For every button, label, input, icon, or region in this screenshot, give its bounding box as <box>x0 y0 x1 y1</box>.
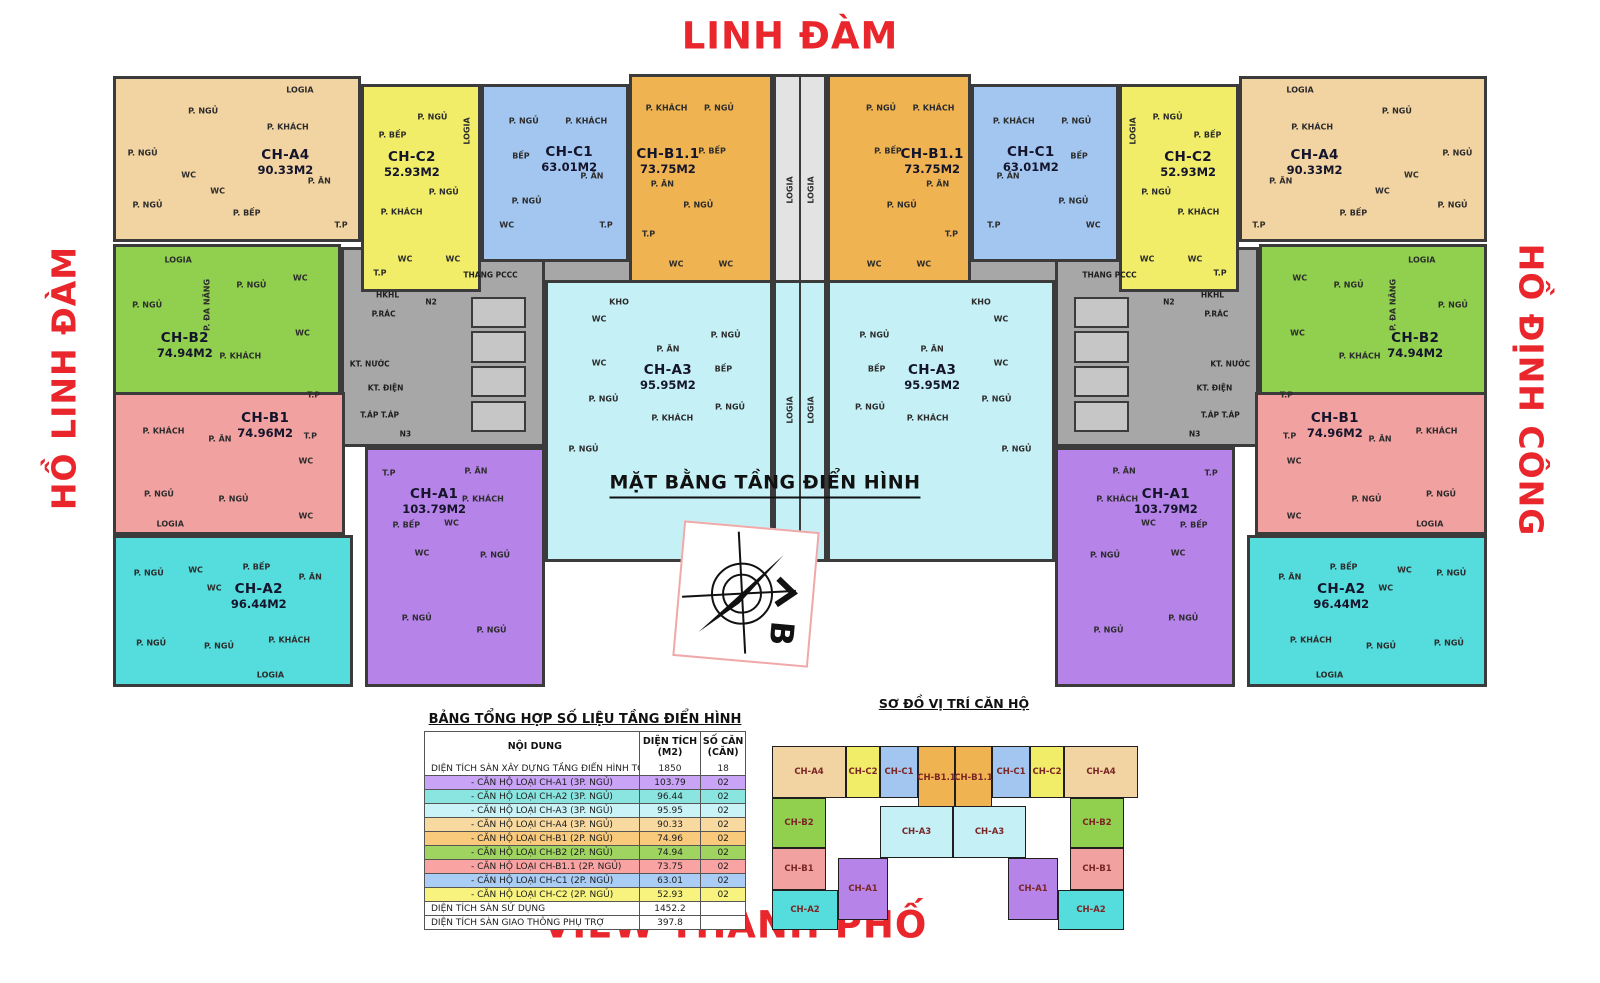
unit-label: CH-A1103.79M2 <box>402 486 466 516</box>
room-label: BẾP <box>715 364 732 373</box>
room-label: P. NGỦ <box>219 495 249 504</box>
room-label: WC <box>592 314 607 323</box>
unit-name: CH-B1.1 <box>636 146 699 162</box>
row-label: - CĂN HỘ LOẠI CH-A1 (3P. NGỦ) <box>425 776 639 789</box>
unit-area: 96.44M2 <box>1313 597 1369 611</box>
room-label: P. BẾP <box>1180 520 1208 529</box>
row-label: DIỆN TÍCH SÀN XÂY DỰNG TẦNG ĐIỂN HÌNH TÒ… <box>425 762 639 775</box>
unit-name: CH-B1 <box>1307 410 1363 426</box>
room-label: BẾP <box>512 151 529 160</box>
row-label: - CĂN HỘ LOẠI CH-A3 (3P. NGỦ) <box>425 804 639 817</box>
unit-name: CH-A2 <box>1313 581 1369 597</box>
room-label: P. NGỦ <box>887 200 917 209</box>
room-label: LOGIA <box>786 177 795 204</box>
room-label: P. NGỦ <box>1366 642 1396 651</box>
room-label: P. BẾP <box>233 209 261 218</box>
room-label: P. NGỦ <box>589 394 619 403</box>
room-label: P. NGỦ <box>477 626 507 635</box>
room-label: P. BẾP <box>1194 131 1222 140</box>
unit-label: CH-A1103.79M2 <box>1134 486 1198 516</box>
room-label: WC <box>398 254 413 263</box>
room-label: P. NGỦ <box>982 394 1012 403</box>
unit-area: 74.96M2 <box>1307 426 1363 440</box>
room-label: T.P <box>304 432 317 441</box>
room-label: P. NGỦ <box>1061 117 1091 126</box>
unit-name: CH-A3 <box>640 362 696 378</box>
unit-area: 90.33M2 <box>257 163 313 177</box>
summary-table-section: BẢNG TỔNG HỢP SỐ LIỆU TẦNG ĐIỂN HÌNH NỘI… <box>424 712 746 930</box>
unit-area: 63.01M2 <box>1003 160 1059 174</box>
apartment-CH-B1-left: CH-B174.96M2P. KHÁCHP. ĂNT.PP. NGỦP. NGỦ… <box>113 392 345 535</box>
row-count: 02 <box>700 888 745 901</box>
room-label: P. NGỦ <box>417 113 447 122</box>
unit-area: 96.44M2 <box>231 597 287 611</box>
room-label: WC <box>210 187 225 196</box>
unit-name: CH-C2 <box>1160 149 1216 165</box>
room-label: P. NGỦ <box>136 639 166 648</box>
table-row: - CĂN HỘ LOẠI CH-C2 (2P. NGỦ)52.9302 <box>425 887 745 901</box>
unit-area: 73.75M2 <box>901 162 964 176</box>
room-label: P. KHÁCH <box>1291 123 1333 132</box>
unit-name: CH-C1 <box>541 144 597 160</box>
room-label: P. NGỦ <box>866 103 896 112</box>
room-label: P. NGỦ <box>1058 196 1088 205</box>
row-label: DIỆN TÍCH SÀN SỬ DỤNG <box>425 902 639 915</box>
unit-name: CH-A2 <box>231 581 287 597</box>
row-label: DIỆN TÍCH SÀN GIAO THÔNG PHỤ TRỢ <box>425 916 639 929</box>
room-label: WC <box>1404 171 1419 180</box>
room-label: KT. ĐIỆN <box>368 383 404 392</box>
unit-label: CH-A395.95M2 <box>904 362 960 392</box>
room-label: T.P <box>307 390 320 399</box>
room-label: P. BẾP <box>392 520 420 529</box>
room-label: T.P <box>1283 432 1296 441</box>
unit-area: 74.94M2 <box>157 346 213 360</box>
header-so-can: SỐ CĂN(CĂN) <box>700 732 745 762</box>
row-count <box>700 916 745 929</box>
row-area: 1452.2 <box>639 902 701 915</box>
room-label: LOGIA <box>1408 256 1435 265</box>
minimap-unit-CH-C1: CH-C1 <box>880 746 918 798</box>
minimap-unit-CH-A1: CH-A1 <box>1008 858 1058 920</box>
room-label: N3 <box>400 430 412 439</box>
room-label: P. NGỦ <box>1382 107 1412 116</box>
table-row: - CĂN HỘ LOẠI CH-A1 (3P. NGỦ)103.7902 <box>425 775 745 789</box>
room-label: P. NGỦ <box>855 403 885 412</box>
room-label: P.RÁC <box>372 310 396 319</box>
room-label: P. ĂN <box>1368 434 1391 443</box>
unit-name: CH-A1 <box>1134 486 1198 502</box>
unit-label: CH-B274.94M2 <box>1387 330 1443 360</box>
room-label: P. KHÁCH <box>143 426 185 435</box>
room-label: P. ĂN <box>651 180 674 189</box>
apartment-CH-A3-left: CH-A395.95M2KHOWCWCP. NGỦP. NGỦP. ĂNBẾPP… <box>545 280 773 562</box>
room-label: KHO <box>609 298 629 307</box>
row-label: - CĂN HỘ LOẠI CH-A2 (3P. NGỦ) <box>425 790 639 803</box>
minimap-unit-CH-A4: CH-A4 <box>772 746 846 798</box>
room-label: P. NGỦ <box>236 281 266 290</box>
elevator-shaft <box>471 331 526 362</box>
unit-name: CH-A4 <box>1287 147 1343 163</box>
header-noi-dung: NỘI DUNG <box>425 732 639 762</box>
room-label: P. NGỦ <box>1141 188 1171 197</box>
table-row: DIỆN TÍCH SÀN SỬ DỤNG1452.2 <box>425 901 745 915</box>
room-label: T.P <box>1280 390 1293 399</box>
room-label: LOGIA <box>1316 671 1343 680</box>
room-label: T.P <box>642 229 655 238</box>
row-label: - CĂN HỘ LOẠI CH-C2 (2P. NGỦ) <box>425 888 639 901</box>
room-label: LOGIA <box>806 177 815 204</box>
minimap-unit-CH-A2: CH-A2 <box>772 890 838 930</box>
room-label: THANG PCCC <box>463 271 517 280</box>
room-label: WC <box>669 260 684 269</box>
elevator-shaft <box>1074 401 1129 432</box>
unit-label: CH-A296.44M2 <box>231 581 287 611</box>
unit-name: CH-A3 <box>904 362 960 378</box>
unit-label: CH-C163.01M2 <box>1003 144 1059 174</box>
minimap-unit-CH-B1: CH-B1 <box>772 848 826 890</box>
unit-label: CH-B174.96M2 <box>237 410 293 440</box>
apartment-CH-C2-left: CH-C252.93M2P. NGỦP. BẾPLOGIAP. NGỦP. KH… <box>361 84 481 292</box>
room-label: WC <box>1375 187 1390 196</box>
unit-label: CH-C252.93M2 <box>384 149 440 179</box>
table-row: - CĂN HỘ LOẠI CH-B1.1 (2P. NGỦ)73.7502 <box>425 859 745 873</box>
minimap-unit-CH-C2: CH-C2 <box>846 746 880 798</box>
row-area: 103.79 <box>639 776 701 789</box>
compass-icon: B <box>675 522 814 661</box>
minimap-unit-CH-B1.1: CH-B1.1 <box>955 746 992 810</box>
room-label: LOGIA <box>1286 86 1313 95</box>
room-label: P. NGỦ <box>132 201 162 210</box>
room-label: P. NGỦ <box>429 188 459 197</box>
room-label: WC <box>867 260 882 269</box>
unit-label: CH-B1.173.75M2 <box>636 146 699 176</box>
room-label: P. NGỦ <box>480 551 510 560</box>
room-label: T.P <box>600 220 613 229</box>
summary-table-title: BẢNG TỔNG HỢP SỐ LIỆU TẦNG ĐIỂN HÌNH <box>424 712 746 727</box>
room-label: P. KHÁCH <box>651 414 693 423</box>
room-label: P. KHÁCH <box>646 103 688 112</box>
room-label: WC <box>1287 511 1302 520</box>
row-count: 02 <box>700 790 745 803</box>
room-label: P. NGỦ <box>1351 495 1381 504</box>
room-label: P. NGỦ <box>512 196 542 205</box>
minimap-unit-CH-A3: CH-A3 <box>953 806 1026 858</box>
room-label: WC <box>181 171 196 180</box>
apartment-CH-A1-right: CH-A1103.79M2T.PP. ĂNP. KHÁCHP. BẾPWCWCP… <box>1055 447 1235 687</box>
room-label: P. ĂN <box>208 434 231 443</box>
summary-table: NỘI DUNG DIỆN TÍCH(M2) SỐ CĂN(CĂN) DIỆN … <box>424 731 746 930</box>
unit-area: 103.79M2 <box>402 502 466 516</box>
room-label: LOGIA <box>462 118 471 145</box>
room-label: P. ĂN <box>926 180 949 189</box>
room-label: P. KHÁCH <box>993 117 1035 126</box>
room-label: P. NGỦ <box>1434 639 1464 648</box>
room-label: P. KHÁCH <box>565 117 607 126</box>
unit-label: CH-A490.33M2 <box>1287 147 1343 177</box>
room-label: P. NGỦ <box>1334 281 1364 290</box>
room-label: WC <box>592 359 607 368</box>
room-label: WC <box>446 254 461 263</box>
room-label: P. KHÁCH <box>1177 208 1219 217</box>
room-label: T.ÁP T.ÁP <box>360 410 399 419</box>
room-label: P. NGỦ <box>1442 148 1472 157</box>
row-area: 90.33 <box>639 818 701 831</box>
row-count <box>700 902 745 915</box>
room-label: P. KHÁCH <box>381 208 423 217</box>
row-area: 397.8 <box>639 916 701 929</box>
room-label: WC <box>994 314 1009 323</box>
room-label: T.P <box>1252 220 1265 229</box>
room-label: P. NGỦ <box>134 569 164 578</box>
unit-name: CH-A4 <box>257 147 313 163</box>
room-label: P. NGỦ <box>859 331 889 340</box>
unit-label: CH-A490.33M2 <box>257 147 313 177</box>
room-label: P. KHÁCH <box>913 103 955 112</box>
room-label: T.P <box>1205 469 1218 478</box>
room-label: P. KHÁCH <box>267 123 309 132</box>
room-label: HKHL <box>1201 290 1224 299</box>
unit-area: 52.93M2 <box>384 165 440 179</box>
table-row: DIỆN TÍCH SÀN XÂY DỰNG TẦNG ĐIỂN HÌNH TÒ… <box>425 762 745 775</box>
elevator-shaft <box>1074 366 1129 397</box>
room-label: WC <box>1140 254 1155 263</box>
room-label: P. ĂN <box>921 345 944 354</box>
room-label: P. KHÁCH <box>462 495 504 504</box>
unit-label: CH-B274.94M2 <box>157 330 213 360</box>
unit-name: CH-C1 <box>1003 144 1059 160</box>
room-label: P. KHÁCH <box>1339 352 1381 361</box>
row-label: - CĂN HỘ LOẠI CH-A4 (3P. NGỦ) <box>425 818 639 831</box>
apartment-CH-C1-left: CH-C163.01M2P. NGỦP. KHÁCHBẾPP. ĂNP. NGỦ… <box>481 84 629 262</box>
row-area: 95.95 <box>639 804 701 817</box>
table-row: - CĂN HỘ LOẠI CH-B2 (2P. NGỦ)74.9402 <box>425 845 745 859</box>
room-label: P. BẾP <box>874 147 902 156</box>
room-label: N3 <box>1189 430 1201 439</box>
row-count: 02 <box>700 818 745 831</box>
unit-name: CH-B2 <box>157 330 213 346</box>
room-label: P. NGỦ <box>402 614 432 623</box>
table-row: - CĂN HỘ LOẠI CH-A3 (3P. NGỦ)95.9502 <box>425 803 745 817</box>
unit-label: CH-A296.44M2 <box>1313 581 1369 611</box>
room-label: P. BẾP <box>1330 563 1358 572</box>
unit-area: 63.01M2 <box>541 160 597 174</box>
room-label: P. KHÁCH <box>907 414 949 423</box>
room-label: WC <box>1141 518 1156 527</box>
room-label: KT. NƯỚC <box>1210 360 1250 369</box>
room-label: LOGIA <box>806 396 815 423</box>
room-label: P. ĂN <box>656 345 679 354</box>
elevator-shaft <box>471 366 526 397</box>
room-label: WC <box>916 260 931 269</box>
room-label: T.P <box>945 229 958 238</box>
apartment-CH-A3-right: CH-A395.95M2KHOWCWCP. NGỦP. NGỦP. ĂNBẾPP… <box>827 280 1055 562</box>
room-label: WC <box>1290 329 1305 338</box>
room-label: P. ĂN <box>1113 467 1136 476</box>
unit-area: 95.95M2 <box>904 378 960 392</box>
room-label: WC <box>444 518 459 527</box>
room-label: P. NGỦ <box>683 200 713 209</box>
room-label: WC <box>298 511 313 520</box>
row-label: - CĂN HỘ LOẠI CH-B1.1 (2P. NGỦ) <box>425 860 639 873</box>
room-label: N2 <box>1163 298 1175 307</box>
room-label: WC <box>1378 583 1393 592</box>
room-label: T.P <box>373 268 386 277</box>
room-label: P. NGỦ <box>1090 551 1120 560</box>
room-label: WC <box>1287 456 1302 465</box>
unit-name: CH-B1 <box>237 410 293 426</box>
unit-area: 52.93M2 <box>1160 165 1216 179</box>
room-label: P. KHÁCH <box>219 352 261 361</box>
room-label: WC <box>1086 220 1101 229</box>
unit-area: 90.33M2 <box>1287 163 1343 177</box>
room-label: P. BẾP <box>379 131 407 140</box>
room-label: P. KHÁCH <box>1096 495 1138 504</box>
row-label: - CĂN HỘ LOẠI CH-B2 (2P. NGỦ) <box>425 846 639 859</box>
unit-label: CH-B174.96M2 <box>1307 410 1363 440</box>
room-label: P. NGỦ <box>569 444 599 453</box>
room-label: P. BẾP <box>698 147 726 156</box>
apartment-CH-A4-left: CH-A490.33M2LOGIAP. NGỦP. KHÁCHP. NGỦP. … <box>113 76 361 242</box>
room-label: P. ĐA NĂNG <box>203 279 212 331</box>
room-label: P. NGỦ <box>1153 113 1183 122</box>
table-row: - CĂN HỘ LOẠI CH-A2 (3P. NGỦ)96.4402 <box>425 789 745 803</box>
room-label: WC <box>1188 254 1203 263</box>
unit-label: CH-B1.173.75M2 <box>901 146 964 176</box>
apartment-CH-B1.1-left: CH-B1.173.75M2P. KHÁCHP. NGỦP. BẾPP. ĂNP… <box>629 74 773 286</box>
row-area: 63.01 <box>639 874 701 887</box>
row-area: 96.44 <box>639 790 701 803</box>
plan-title: MẶT BẰNG TẦNG ĐIỂN HÌNH <box>609 472 920 499</box>
apartment-CH-A4-right: CH-A490.33M2LOGIAP. NGỦP. KHÁCHP. NGỦP. … <box>1239 76 1487 242</box>
apartment-CH-A1-left: CH-A1103.79M2T.PP. ĂNP. KHÁCHP. BẾPWCWCP… <box>365 447 545 687</box>
apartment-CH-A2-right: CH-A296.44M2P. NGỦWCWCP. BẾPP. ĂNP. NGỦP… <box>1247 535 1487 687</box>
compass-north-letter: B <box>762 620 802 648</box>
unit-name: CH-A1 <box>402 486 466 502</box>
room-label: P. NGỦ <box>1438 300 1468 309</box>
minimap-unit-CH-A2: CH-A2 <box>1058 890 1124 930</box>
row-count: 02 <box>700 776 745 789</box>
minimap-unit-CH-A1: CH-A1 <box>838 858 888 920</box>
unit-area: 103.79M2 <box>1134 502 1198 516</box>
unit-area: 74.96M2 <box>237 426 293 440</box>
room-label: P. BẾP <box>243 563 271 572</box>
summary-table-header-row: NỘI DUNG DIỆN TÍCH(M2) SỐ CĂN(CĂN) <box>425 732 745 762</box>
room-label: P. ĂN <box>464 467 487 476</box>
elevator-shaft <box>1074 297 1129 328</box>
room-label: P. NGỦ <box>1426 489 1456 498</box>
table-row: DIỆN TÍCH SÀN GIAO THÔNG PHỤ TRỢ397.8 <box>425 915 745 929</box>
table-row: - CĂN HỘ LOẠI CH-B1 (2P. NGỦ)74.9602 <box>425 831 745 845</box>
minimap-unit-CH-A4: CH-A4 <box>1064 746 1138 798</box>
minimap-unit-CH-C2: CH-C2 <box>1030 746 1064 798</box>
apartment-CH-B1.1-right: CH-B1.173.75M2P. KHÁCHP. NGỦP. BẾPP. ĂNP… <box>827 74 971 286</box>
room-label: P. NGỦ <box>1436 569 1466 578</box>
room-label: P. ĐA NĂNG <box>1388 279 1397 331</box>
room-label: WC <box>1292 273 1307 282</box>
room-label: BẾP <box>868 364 885 373</box>
row-area: 1850 <box>639 762 701 775</box>
unit-label: CH-A395.95M2 <box>640 362 696 392</box>
minimap-unit-CH-B2: CH-B2 <box>1070 798 1124 848</box>
room-label: P. KHÁCH <box>1290 636 1332 645</box>
elevator-shaft <box>1074 331 1129 362</box>
room-label: P. ĂN <box>1269 177 1292 186</box>
room-label: KT. NƯỚC <box>350 360 390 369</box>
header-dien-tich: DIỆN TÍCH(M2) <box>639 732 701 762</box>
row-count: 02 <box>700 860 745 873</box>
unit-name: CH-C2 <box>384 149 440 165</box>
room-label: P. ĂN <box>299 573 322 582</box>
room-label: BẾP <box>1070 151 1087 160</box>
room-label: WC <box>207 583 222 592</box>
room-label: LOGIA <box>1416 519 1443 528</box>
room-label: P. ĂN <box>308 177 331 186</box>
room-label: P. NGỦ <box>1001 444 1031 453</box>
room-label: P. KHÁCH <box>268 636 310 645</box>
elevator-shaft <box>471 401 526 432</box>
apartment-CH-B1-right: CH-B174.96M2P. KHÁCHP. ĂNT.PP. NGỦP. NGỦ… <box>1255 392 1487 535</box>
row-count: 02 <box>700 832 745 845</box>
row-area: 73.75 <box>639 860 701 873</box>
room-label: P. NGỦ <box>711 331 741 340</box>
compass-rose: B <box>672 520 819 667</box>
room-label: T.P <box>1213 268 1226 277</box>
row-area: 74.94 <box>639 846 701 859</box>
room-label: THANG PCCC <box>1082 271 1136 280</box>
room-label: P. NGỦ <box>204 642 234 651</box>
apartment-CH-C1-right: CH-C163.01M2P. NGỦP. KHÁCHBẾPP. ĂNP. NGỦ… <box>971 84 1119 262</box>
row-area: 52.93 <box>639 888 701 901</box>
center-logia-strip: LOGIALOGIA <box>773 280 827 562</box>
room-label: WC <box>1171 548 1186 557</box>
room-label: P. NGỦ <box>1093 626 1123 635</box>
center-logia-strip: LOGIALOGIA <box>773 74 827 286</box>
unit-area: 74.94M2 <box>1387 346 1443 360</box>
room-label: HKHL <box>376 290 399 299</box>
room-label: P. NGỦ <box>704 103 734 112</box>
unit-area: 95.95M2 <box>640 378 696 392</box>
room-label: LOGIA <box>1129 118 1138 145</box>
room-label: T.P <box>987 220 1000 229</box>
unit-name: CH-B1.1 <box>901 146 964 162</box>
row-label: - CĂN HỘ LOẠI CH-C1 (2P. NGỦ) <box>425 874 639 887</box>
room-label: P. NGỦ <box>128 148 158 157</box>
unit-label: CH-C163.01M2 <box>541 144 597 174</box>
room-label: LOGIA <box>164 256 191 265</box>
row-label: - CĂN HỘ LOẠI CH-B1 (2P. NGỦ) <box>425 832 639 845</box>
room-label: P. BẾP <box>1339 209 1367 218</box>
room-label: KHO <box>971 298 991 307</box>
room-label: WC <box>295 329 310 338</box>
room-label: LOGIA <box>286 86 313 95</box>
room-label: P. NGỦ <box>509 117 539 126</box>
room-label: WC <box>188 566 203 575</box>
room-label: LOGIA <box>786 396 795 423</box>
room-label: WC <box>293 273 308 282</box>
row-count: 18 <box>700 762 745 775</box>
room-label: P. NGỦ <box>144 489 174 498</box>
minimap-unit-CH-B1: CH-B1 <box>1070 848 1124 890</box>
room-label: N2 <box>425 298 437 307</box>
room-label: T.ÁP T.ÁP <box>1201 410 1240 419</box>
minimap-unit-CH-B1.1: CH-B1.1 <box>918 746 955 810</box>
room-label: P. KHÁCH <box>1416 426 1458 435</box>
room-label: WC <box>415 548 430 557</box>
room-label: T.P <box>382 469 395 478</box>
room-label: P. ĂN <box>1278 573 1301 582</box>
room-label: WC <box>718 260 733 269</box>
